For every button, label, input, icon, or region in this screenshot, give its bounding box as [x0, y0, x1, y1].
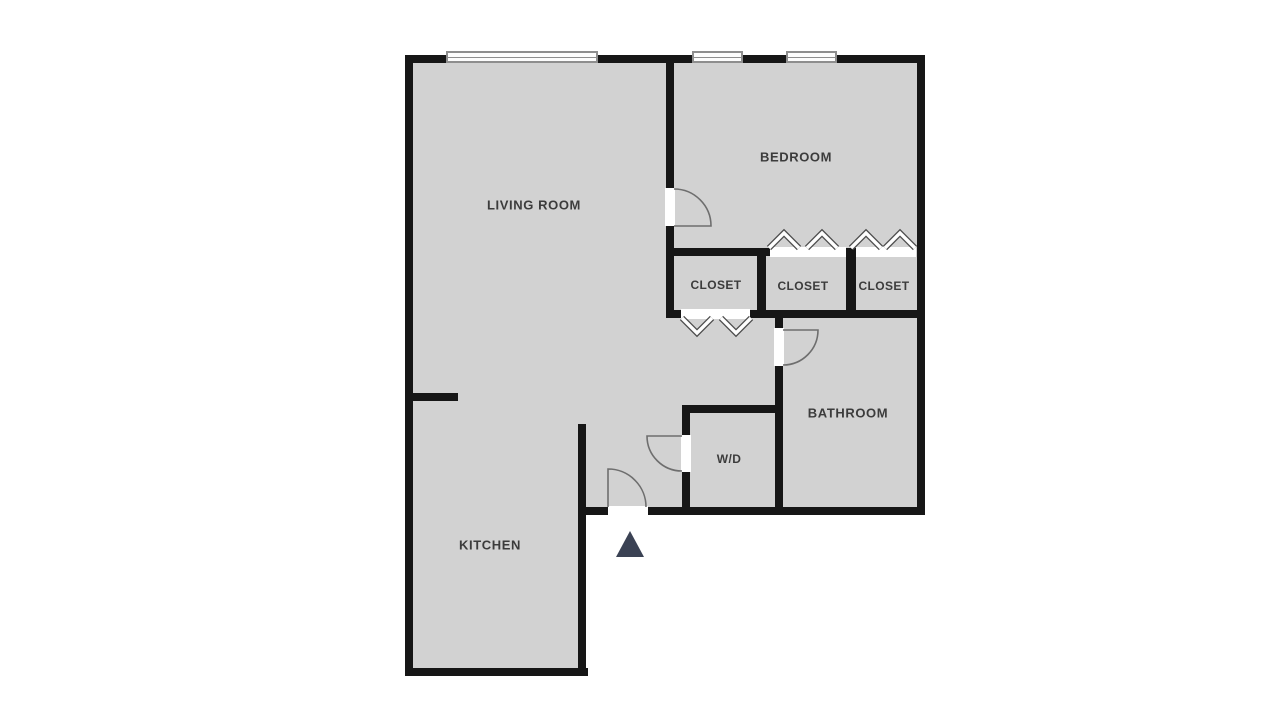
living-room-label: LIVING ROOM [487, 198, 581, 213]
floor-plan: LIVING ROOM BEDROOM CLOSET CLOSET CLOSET… [0, 0, 1280, 720]
entry-arrow-icon [616, 531, 644, 557]
kitchen-label: KITCHEN [459, 538, 521, 553]
wall-kitchen-stub [405, 393, 458, 401]
bedroom-window-2 [786, 51, 837, 63]
wd-door-opening [681, 435, 691, 472]
closet-1-label: CLOSET [690, 278, 741, 292]
closet-2-label: CLOSET [777, 279, 828, 293]
wall-closet-divider-2-3 [846, 254, 856, 312]
wall-wd-top [690, 405, 775, 413]
wall-kitchen-right [578, 424, 586, 676]
closet-3-opening [856, 247, 916, 257]
wall-kitchen-bottom [405, 668, 588, 676]
wall-closet-divider-1-2 [757, 254, 766, 312]
wall-left [405, 55, 413, 676]
floor-kitchen-area [405, 55, 586, 676]
bathroom-door-opening [774, 328, 784, 366]
closet-1-opening [681, 309, 750, 319]
wall-right [917, 55, 925, 515]
living-room-window [446, 51, 598, 63]
bedroom-window-1 [692, 51, 743, 63]
bathroom-label: BATHROOM [808, 406, 888, 421]
closet-2-opening [770, 247, 846, 257]
bedroom-door-opening [665, 188, 675, 226]
closet-3-label: CLOSET [858, 279, 909, 293]
bedroom-label: BEDROOM [760, 150, 832, 165]
wall-closet-top [666, 248, 770, 256]
wall-livingroom-bedroom-divider [666, 55, 674, 318]
wd-label: W/D [717, 452, 742, 466]
entry-door-opening [608, 506, 648, 516]
